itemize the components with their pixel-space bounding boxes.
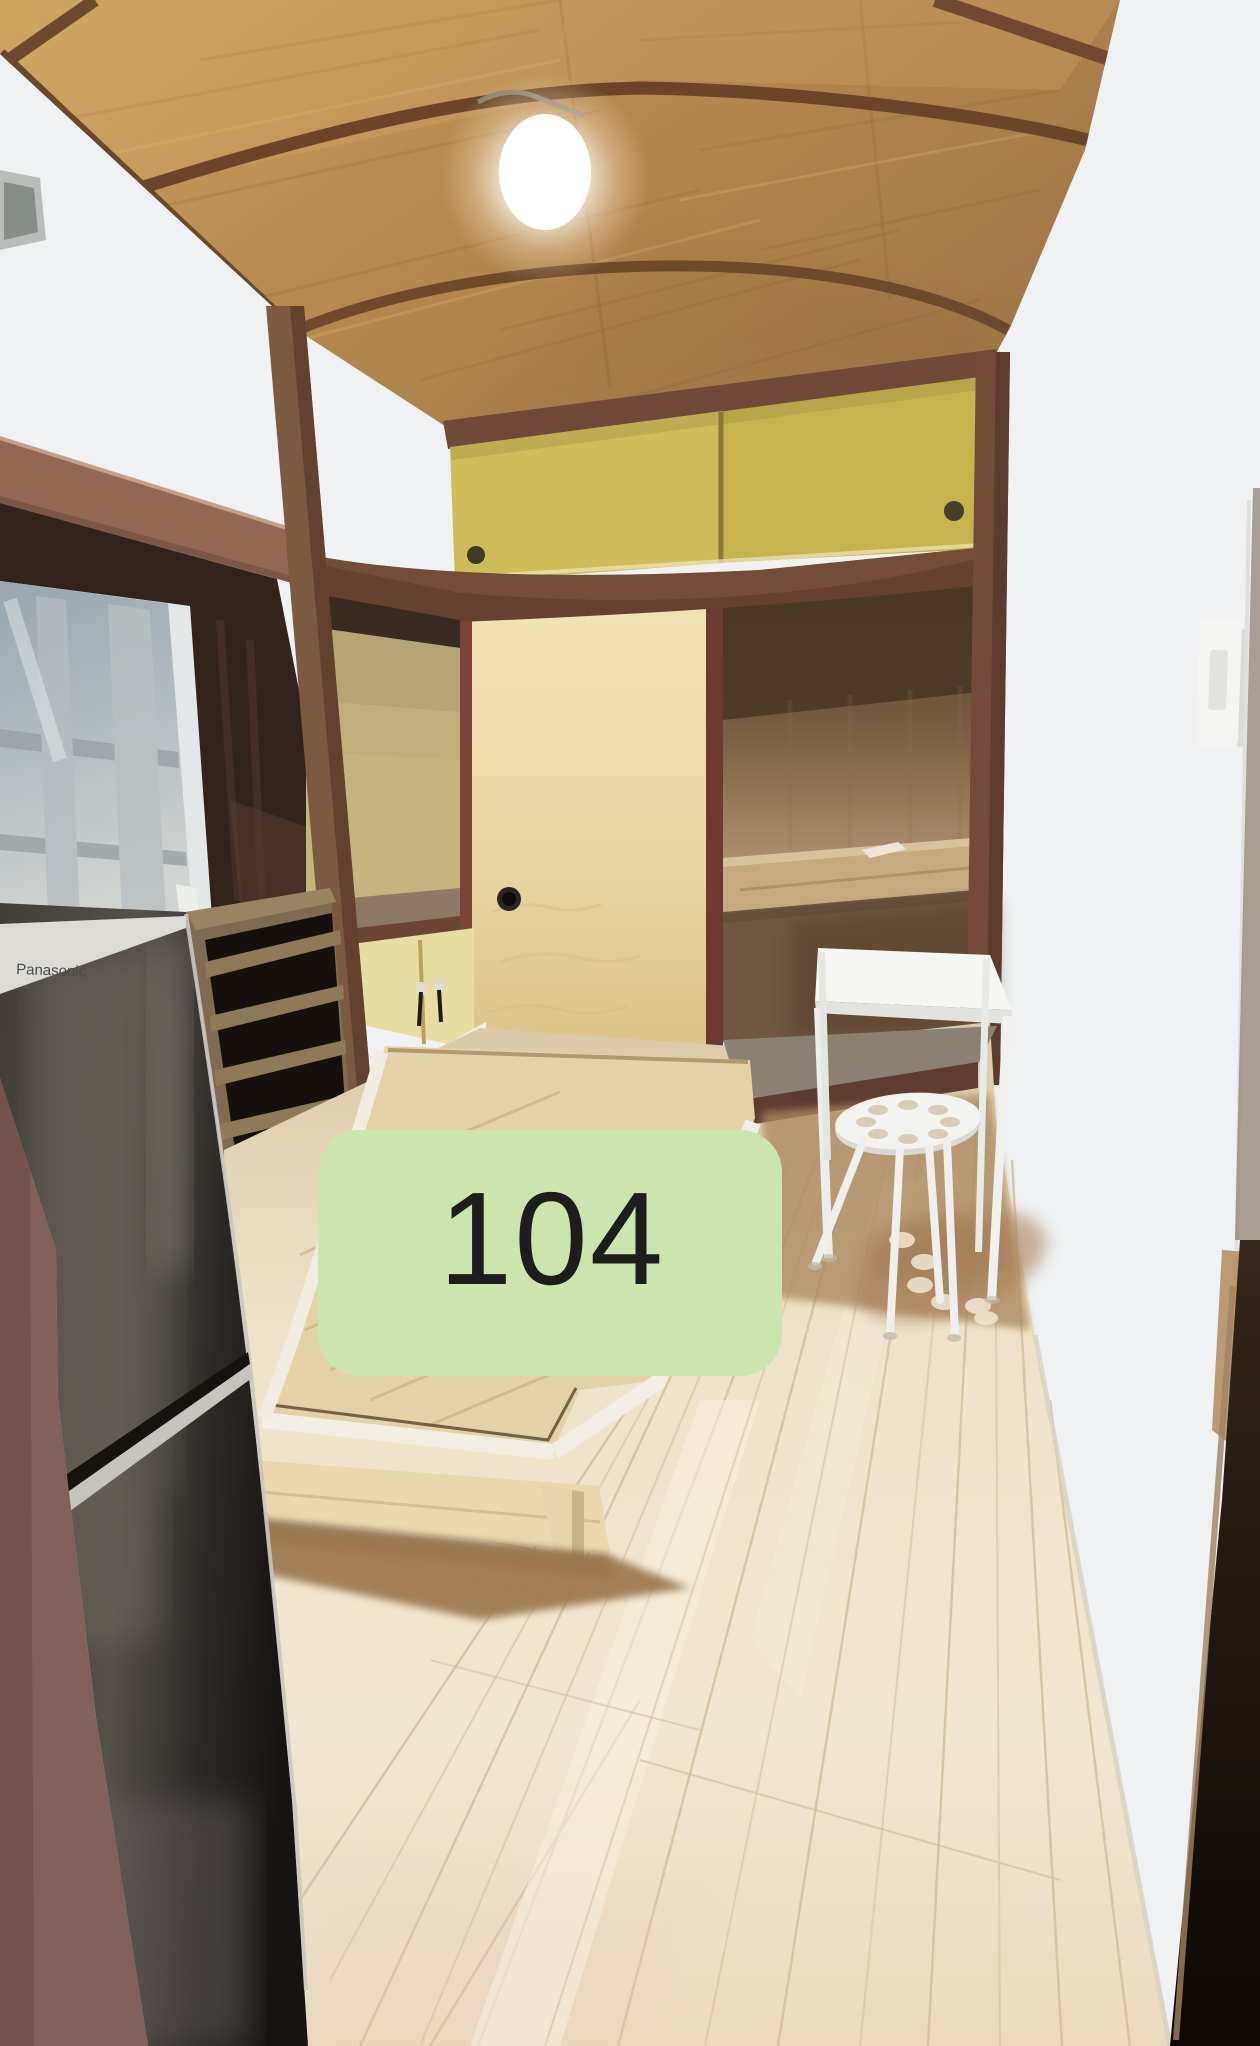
svg-text:104: 104 — [439, 1165, 665, 1312]
svg-text:Panasonic: Panasonic — [16, 961, 87, 980]
